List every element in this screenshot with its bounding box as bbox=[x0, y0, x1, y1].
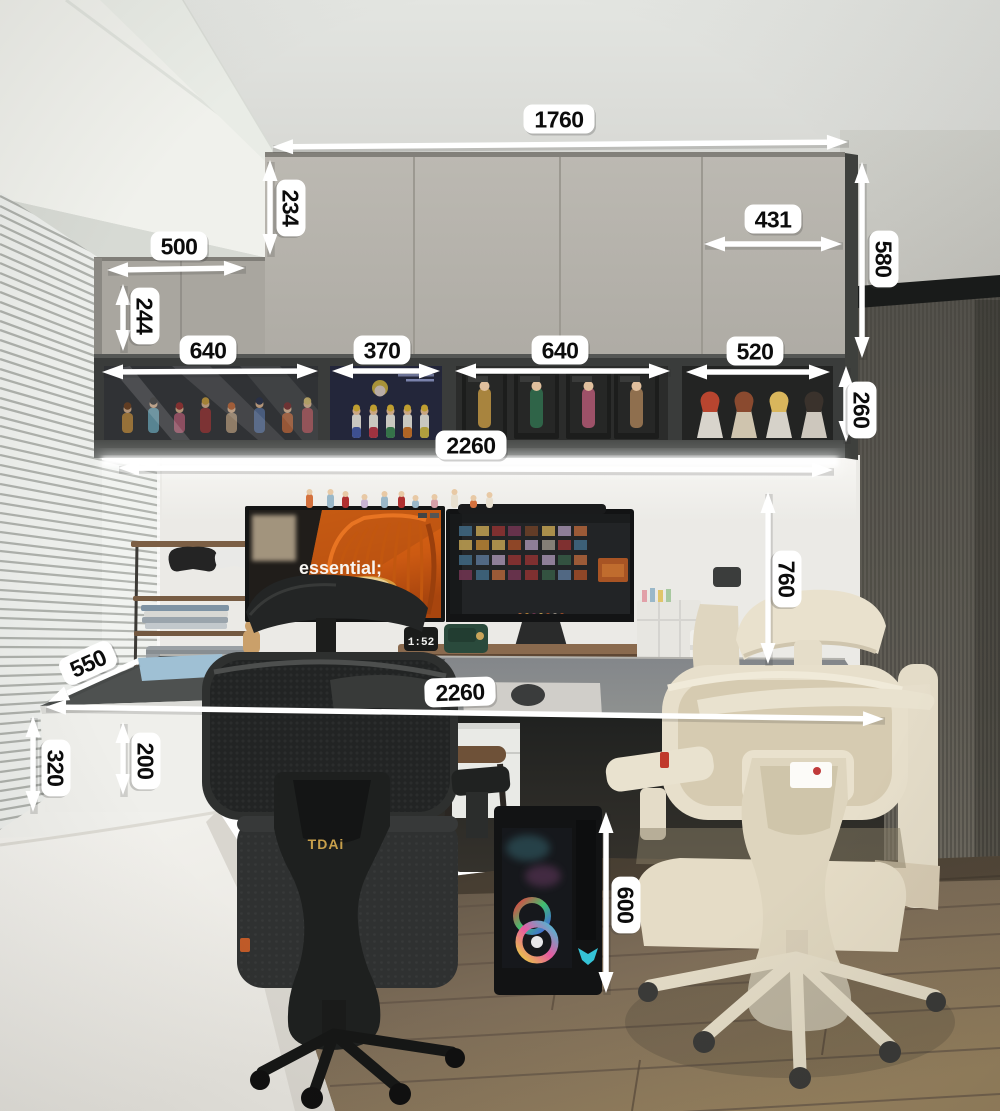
svg-text:234: 234 bbox=[278, 190, 304, 228]
svg-text:370: 370 bbox=[364, 337, 401, 363]
svg-text:500: 500 bbox=[161, 233, 198, 259]
svg-text:200: 200 bbox=[133, 743, 159, 780]
svg-text:2260: 2260 bbox=[446, 432, 495, 458]
svg-text:1760: 1760 bbox=[534, 106, 583, 132]
svg-text:320: 320 bbox=[43, 750, 69, 787]
svg-text:520: 520 bbox=[737, 338, 774, 364]
svg-text:431: 431 bbox=[755, 206, 793, 232]
svg-text:640: 640 bbox=[542, 337, 579, 363]
svg-text:2260: 2260 bbox=[435, 678, 485, 706]
svg-text:760: 760 bbox=[774, 561, 800, 598]
svg-text:580: 580 bbox=[871, 241, 897, 278]
svg-text:244: 244 bbox=[132, 298, 158, 336]
svg-text:600: 600 bbox=[613, 887, 639, 924]
svg-text:260: 260 bbox=[849, 392, 875, 429]
svg-text:640: 640 bbox=[190, 337, 227, 363]
